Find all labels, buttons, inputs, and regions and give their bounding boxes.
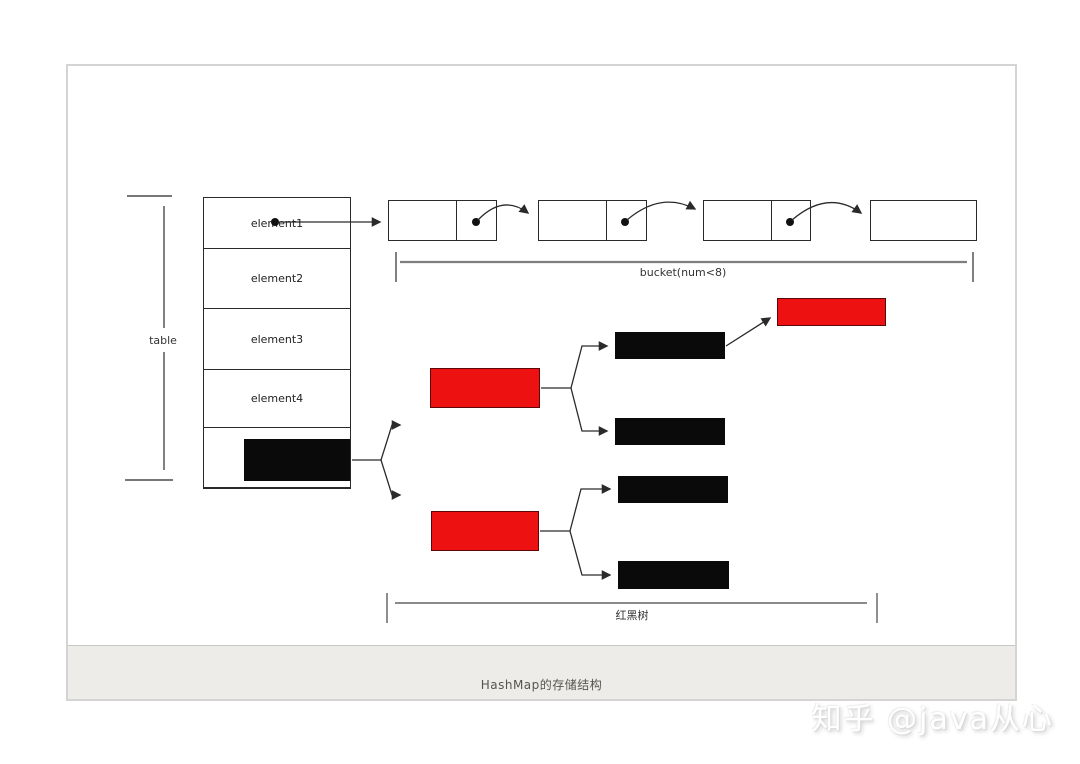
table-row: element4 [204, 370, 350, 428]
table-row: element1 [204, 198, 350, 249]
diagram-caption: HashMap的存储结构 [481, 676, 603, 693]
table-row: element2 [204, 249, 350, 309]
table-cell-label: element3 [251, 333, 303, 346]
hash-table-array: element1 element2 element3 element4 [203, 197, 351, 489]
table-row: element3 [204, 309, 350, 370]
page-background: HashMap的存储结构 element1 element2 element3 … [0, 0, 1080, 764]
caption-band: HashMap的存储结构 [68, 645, 1015, 699]
rbtree-black-node-3 [618, 476, 728, 503]
table-cell-label: element1 [251, 217, 303, 230]
rbtree-red-node-3 [777, 298, 886, 326]
rbtree-black-node-4 [618, 561, 729, 589]
zhihu-watermark: 知乎 @java从心 [812, 694, 1054, 738]
bucket-bracket-label: bucket(num<8) [603, 266, 763, 279]
rbtree-red-node-1 [430, 368, 540, 408]
node-divider [771, 201, 772, 240]
rbtree-bracket-label: 红黑树 [592, 607, 672, 623]
list-node-2 [538, 200, 647, 241]
rbtree-black-node-2 [615, 418, 725, 445]
rbtree-red-node-2 [431, 511, 539, 551]
tree-pointer-black-box [244, 439, 350, 481]
node-divider [456, 201, 457, 240]
list-node-1 [388, 200, 497, 241]
rbtree-black-node-1 [615, 332, 725, 359]
table-bracket-label: table [141, 334, 185, 347]
list-node-4 [870, 200, 977, 241]
table-cell-label: element4 [251, 392, 303, 405]
list-node-3 [703, 200, 811, 241]
node-divider [606, 201, 607, 240]
table-cell-label: element2 [251, 272, 303, 285]
